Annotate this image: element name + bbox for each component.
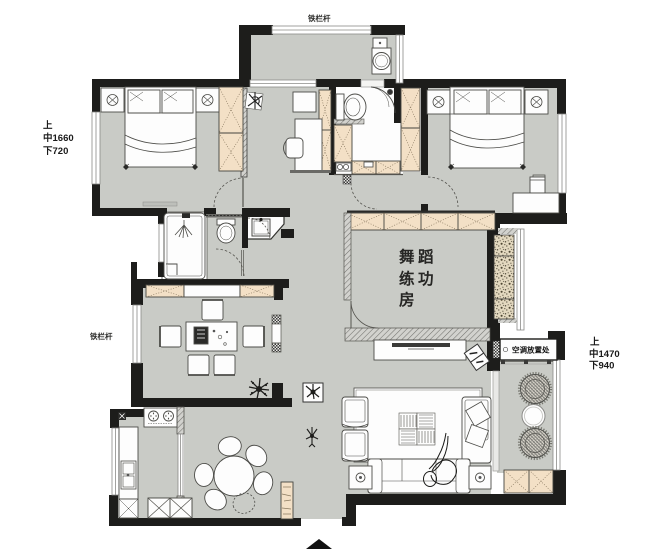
svg-text:空调放置处: 空调放置处 bbox=[512, 345, 550, 355]
svg-text:上: 上 bbox=[590, 336, 600, 348]
svg-text:铁栏杆: 铁栏杆 bbox=[308, 13, 331, 23]
svg-text:下720: 下720 bbox=[43, 146, 68, 157]
svg-text:房: 房 bbox=[399, 290, 415, 309]
svg-text:舞蹈: 舞蹈 bbox=[398, 248, 437, 266]
svg-text:下940: 下940 bbox=[589, 361, 614, 372]
svg-text:中1660: 中1660 bbox=[43, 132, 74, 144]
svg-text:练功: 练功 bbox=[399, 269, 437, 288]
svg-text:铁栏杆: 铁栏杆 bbox=[90, 331, 113, 341]
svg-text:上: 上 bbox=[43, 120, 53, 132]
svg-text:中1470: 中1470 bbox=[589, 348, 620, 360]
